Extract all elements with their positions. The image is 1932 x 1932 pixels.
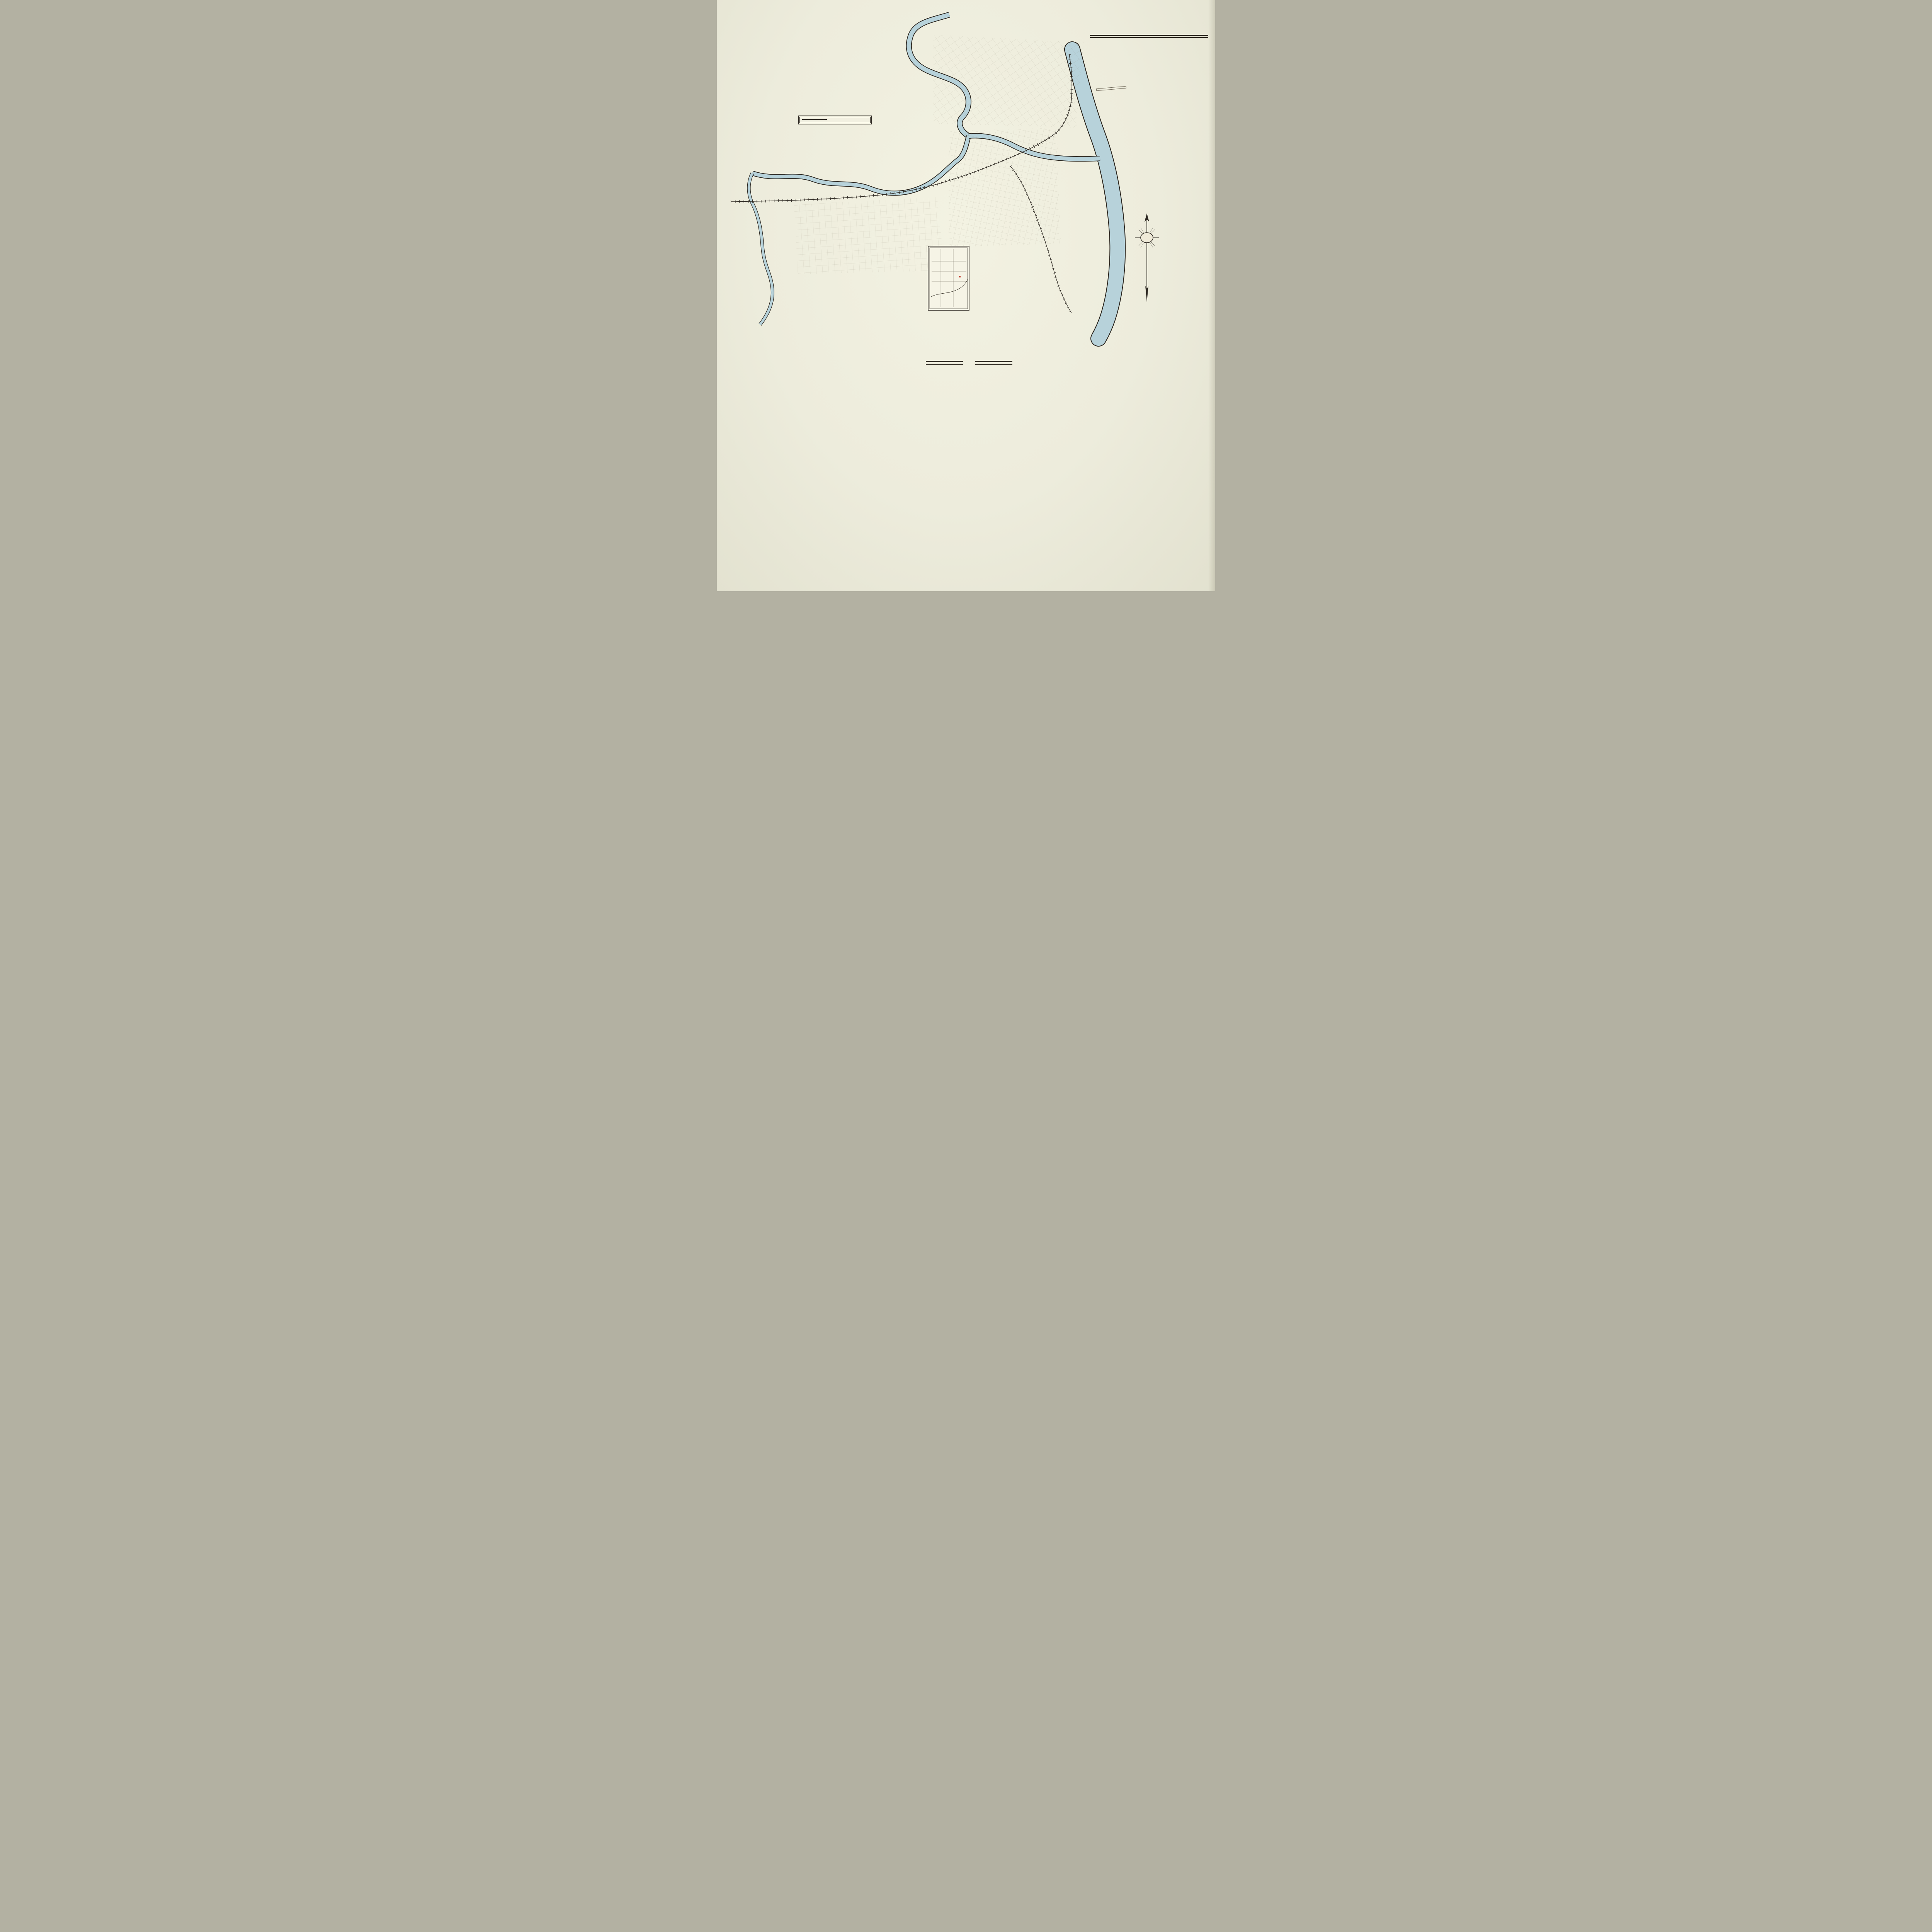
index-title xyxy=(769,361,1169,365)
index-section xyxy=(769,361,1169,375)
index-title-rule-right xyxy=(975,361,1012,365)
map-key xyxy=(799,117,871,123)
publisher-name xyxy=(1133,50,1212,55)
title-block xyxy=(1087,15,1213,111)
compass-rose xyxy=(1135,213,1159,302)
street-grid xyxy=(794,35,1084,274)
index-title-rule-left xyxy=(926,361,963,365)
page-title xyxy=(1090,35,1208,38)
sanborn-map-sheet xyxy=(717,0,1215,591)
key-symbol-box xyxy=(802,119,827,120)
aurora-location-dot xyxy=(959,276,961,277)
location-inset xyxy=(928,246,969,310)
library-stamp xyxy=(1096,86,1126,91)
description-block xyxy=(1105,108,1211,111)
key-lines xyxy=(828,119,868,120)
